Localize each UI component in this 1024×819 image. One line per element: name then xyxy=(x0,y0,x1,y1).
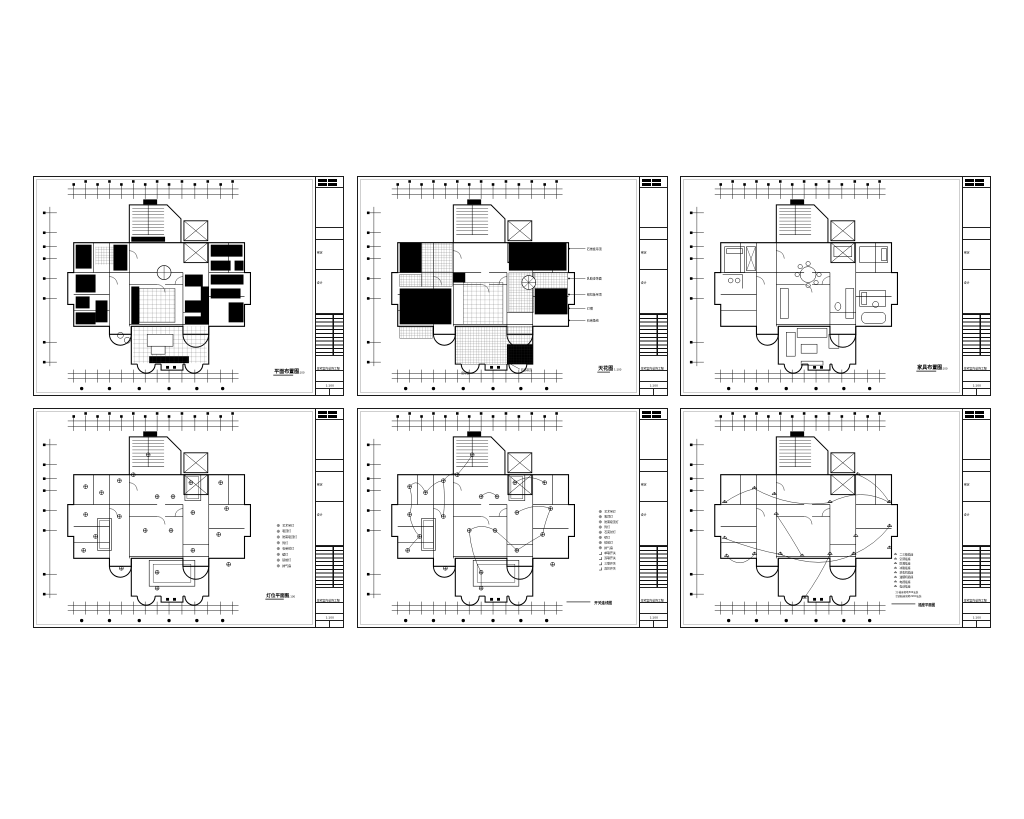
company-logo-icon xyxy=(316,177,343,188)
legend-notes: 注:插座离地300安装空调插座离地2200安装 xyxy=(895,590,922,598)
leader-label: 石膏角线 xyxy=(587,317,599,322)
title-block-cell xyxy=(316,420,343,460)
approval-label: 审定 xyxy=(640,482,646,486)
title-block-cell xyxy=(640,460,667,472)
project-name-cell: 住宅室内装饰工程 xyxy=(316,356,343,371)
project-name-cell: 住宅室内装饰工程 xyxy=(316,588,343,603)
drawing-area: 艺术吊灯吸顶灯防雾吸顶灯筒灯石英射灯壁灯镜前灯排气扇单联开关双联开关三联开关双控… xyxy=(358,409,639,627)
design-label: 设计 xyxy=(316,512,322,516)
company-logo-icon xyxy=(963,409,990,420)
project-name-cell: 住宅室内装饰工程 xyxy=(963,356,990,371)
drawing-area: 二三极插座空调插座防溅插座冰箱插座洗衣机插座油烟机插座电视插座电话插座注:插座离… xyxy=(681,409,962,627)
title-block-cell xyxy=(316,228,343,240)
scale-cell: 1:100 xyxy=(640,614,667,627)
title-block: 审定 设计 住宅室内装饰工程 灯位平面图 1:100 xyxy=(315,409,343,627)
revision-table xyxy=(316,314,343,356)
design-cell: 设计 xyxy=(316,270,343,314)
revision-table xyxy=(316,546,343,588)
drawing-name-cell: 灯位平面图 xyxy=(316,603,343,614)
approval-cell: 审定 xyxy=(963,240,990,270)
sheet-number-cell xyxy=(640,389,667,395)
legend-item-label: 单联开关 xyxy=(604,550,616,555)
legend-item-label: 石英射灯 xyxy=(282,546,294,551)
legend-item-label: 油烟机插座 xyxy=(899,575,913,579)
drawing-sheet-1: 平面布置图1:100 审定 设计 住宅室内装饰工程 平面布置图 1:100 xyxy=(33,176,344,396)
legend-item-label: 双联开关 xyxy=(604,555,616,560)
drawing-area: 石膏板吊顶乳胶漆饰面铝扣板吊顶灯槽石膏角线局部吊顶窗帘盒天花图1:100 xyxy=(358,177,639,395)
scale-value: 1:100 xyxy=(972,615,980,619)
floor-plan-svg: 艺术吊灯吸顶灯防雾吸顶灯筒灯石英射灯壁灯镜前灯排气扇灯位平面图1:100 xyxy=(34,409,315,627)
approval-cell: 审定 xyxy=(316,472,343,502)
title-block: 审定 设计 住宅室内装饰工程 天花图 1:100 xyxy=(639,177,667,395)
design-label: 设计 xyxy=(640,280,646,284)
company-logo-icon xyxy=(640,409,667,420)
ceiling-note: 窗帘盒 xyxy=(461,371,470,375)
design-cell: 设计 xyxy=(640,502,667,546)
ceiling-note: 局部吊顶 xyxy=(521,368,532,372)
project-name: 住宅室内装饰工程 xyxy=(316,598,342,602)
drawing-sheet-6: 二三极插座空调插座防溅插座冰箱插座洗衣机插座油烟机插座电视插座电话插座注:插座离… xyxy=(680,408,991,628)
scale-value: 1:100 xyxy=(649,383,657,387)
legend-item-label: 艺术吊灯 xyxy=(604,509,616,514)
title-block: 审定 设计 住宅室内装饰工程 平面布置图 1:100 xyxy=(315,177,343,395)
revision-table xyxy=(963,314,990,356)
sheet-grid: 平面布置图1:100 审定 设计 住宅室内装饰工程 平面布置图 1:100 石膏… xyxy=(0,0,1024,819)
company-logo-icon xyxy=(316,409,343,420)
approval-label: 审定 xyxy=(963,250,969,254)
note-line: 注:插座离地300安装 xyxy=(895,590,918,594)
scale-cell: 1:100 xyxy=(316,614,343,627)
sheet-number-cell xyxy=(963,389,990,395)
sheet-number-cell xyxy=(316,389,343,395)
sheet-scale: 1:100 xyxy=(614,368,622,372)
scale-value: 1:100 xyxy=(972,383,980,387)
legend-item-label: 壁灯 xyxy=(604,534,610,539)
legend-item-label: 防雾吸顶灯 xyxy=(282,534,297,539)
project-name-cell: 住宅室内装饰工程 xyxy=(640,356,667,371)
title-block-cell xyxy=(640,420,667,460)
scale-cell: 1:100 xyxy=(963,382,990,395)
title-block: 审定 设计 住宅室内装饰工程 家具布置图 1:100 xyxy=(962,177,990,395)
legend-item-label: 电视插座 xyxy=(899,580,910,584)
drawing-name-cell: 天花图 xyxy=(640,371,667,382)
scale-cell: 1:100 xyxy=(963,614,990,627)
sheet-title: 平面布置图 xyxy=(274,368,299,375)
approval-cell: 审定 xyxy=(640,472,667,502)
scale-cell: 1:100 xyxy=(640,382,667,395)
floor-plan-svg: 石膏板吊顶乳胶漆饰面铝扣板吊顶灯槽石膏角线局部吊顶窗帘盒天花图1:100 xyxy=(358,177,639,395)
floor-plan-svg: 二三极插座空调插座防溅插座冰箱插座洗衣机插座油烟机插座电视插座电话插座注:插座离… xyxy=(681,409,962,627)
title-block-cell xyxy=(316,188,343,228)
legend-item-label: 防雾吸顶灯 xyxy=(604,519,618,524)
scale-bar xyxy=(567,601,591,602)
legend-item-label: 冰箱插座 xyxy=(899,566,910,570)
approval-label: 审定 xyxy=(640,250,646,254)
legend-item-label: 二三极插座 xyxy=(899,552,913,556)
legend-item-label: 吸顶灯 xyxy=(604,514,613,519)
legend: 艺术吊灯吸顶灯防雾吸顶灯筒灯石英射灯壁灯镜前灯排气扇 xyxy=(277,522,297,567)
project-name: 住宅室内装饰工程 xyxy=(640,366,666,370)
drawing-sheet-4: 艺术吊灯吸顶灯防雾吸顶灯筒灯石英射灯壁灯镜前灯排气扇灯位平面图1:100 审定 … xyxy=(33,408,344,628)
company-logo-icon xyxy=(640,177,667,188)
sheet-title: 灯位平面图 xyxy=(266,592,289,599)
drawing-sheet-5: 艺术吊灯吸顶灯防雾吸顶灯筒灯石英射灯壁灯镜前灯排气扇单联开关双联开关三联开关双控… xyxy=(357,408,668,628)
legend-item-label: 排气扇 xyxy=(604,545,613,550)
approval-cell: 审定 xyxy=(963,472,990,502)
design-label: 设计 xyxy=(963,280,969,284)
scale-cell: 1:100 xyxy=(316,382,343,395)
drawing-name-cell: 插座平面图 xyxy=(963,603,990,614)
design-label: 设计 xyxy=(316,280,322,284)
sheet-title: 家具布置图 xyxy=(917,364,942,371)
approval-label: 审定 xyxy=(963,482,969,486)
project-name-cell: 住宅室内装饰工程 xyxy=(640,588,667,603)
legend-item-label: 电话插座 xyxy=(899,584,910,588)
sheet-scale: 1:100 xyxy=(297,371,305,375)
drawing-name-cell: 开关连线图 xyxy=(640,603,667,614)
revision-table xyxy=(963,546,990,588)
note-line: 空调插座离地2200安装 xyxy=(895,594,922,598)
legend: 二三极插座空调插座防溅插座冰箱插座洗衣机插座油烟机插座电视插座电话插座 xyxy=(894,552,914,588)
legend-item-label: 艺术吊灯 xyxy=(282,522,294,527)
legend-item-label: 石英射灯 xyxy=(604,529,616,534)
leader-label: 灯槽 xyxy=(587,305,593,310)
floor-plan-svg: 家具布置图1:100 xyxy=(681,177,962,395)
project-name: 住宅室内装饰工程 xyxy=(640,598,666,602)
title-block-cell xyxy=(963,460,990,472)
page-root: { "page": { "background": "#ffffff", "in… xyxy=(0,0,1024,819)
title-block: 审定 设计 住宅室内装饰工程 插座平面图 1:100 xyxy=(962,409,990,627)
title-block-cell xyxy=(316,460,343,472)
project-name: 住宅室内装饰工程 xyxy=(963,598,989,602)
drawing-area: 平面布置图1:100 xyxy=(34,177,315,395)
legend-item-label: 排气扇 xyxy=(282,563,291,568)
sheet-scale: 1:100 xyxy=(940,367,948,371)
scale-value: 1:100 xyxy=(325,615,333,619)
design-cell: 设计 xyxy=(316,502,343,546)
scale-bar xyxy=(892,603,916,604)
title-block-cell xyxy=(640,228,667,240)
design-label: 设计 xyxy=(963,512,969,516)
title-block-cell xyxy=(640,188,667,228)
title-block-cell xyxy=(963,188,990,228)
legend-item-label: 吸顶灯 xyxy=(282,528,291,533)
project-name-cell: 住宅室内装饰工程 xyxy=(963,588,990,603)
legend: 艺术吊灯吸顶灯防雾吸顶灯筒灯石英射灯壁灯镜前灯排气扇单联开关双联开关三联开关双控… xyxy=(599,509,619,571)
drawing-name-cell: 家具布置图 xyxy=(963,371,990,382)
legend-item-label: 双控开关 xyxy=(604,565,616,570)
sheet-number-cell xyxy=(963,621,990,627)
sheet-title: 开关连线图 xyxy=(594,600,612,605)
drawing-name-cell: 平面布置图 xyxy=(316,371,343,382)
legend-item-label: 防溅插座 xyxy=(899,561,910,565)
design-cell: 设计 xyxy=(640,270,667,314)
leader-label: 乳胶漆饰面 xyxy=(587,276,602,281)
sheet-title: 天花图 xyxy=(598,365,613,372)
title-block-cell xyxy=(963,228,990,240)
approval-label: 审定 xyxy=(316,250,322,254)
legend-item-label: 筒灯 xyxy=(604,524,610,529)
leader-label: 石膏板吊顶 xyxy=(587,246,602,251)
design-label: 设计 xyxy=(640,512,646,516)
sheet-number-cell xyxy=(640,621,667,627)
approval-cell: 审定 xyxy=(316,240,343,270)
legend-item-label: 空调插座 xyxy=(899,557,910,561)
title-block-cell xyxy=(963,420,990,460)
drawing-area: 艺术吊灯吸顶灯防雾吸顶灯筒灯石英射灯壁灯镜前灯排气扇灯位平面图1:100 xyxy=(34,409,315,627)
sheet-title: 插座平面图 xyxy=(918,602,935,607)
drawing-area: 家具布置图1:100 xyxy=(681,177,962,395)
floor-plan-svg: 艺术吊灯吸顶灯防雾吸顶灯筒灯石英射灯壁灯镜前灯排气扇单联开关双联开关三联开关双控… xyxy=(358,409,639,627)
drawing-sheet-2: 石膏板吊顶乳胶漆饰面铝扣板吊顶灯槽石膏角线局部吊顶窗帘盒天花图1:100 审定 … xyxy=(357,176,668,396)
project-name: 住宅室内装饰工程 xyxy=(963,366,989,370)
design-cell: 设计 xyxy=(963,270,990,314)
leader-label: 铝扣板吊顶 xyxy=(587,292,602,297)
legend-item-label: 筒灯 xyxy=(282,540,288,545)
legend-item-label: 三联开关 xyxy=(604,560,616,565)
scale-value: 1:100 xyxy=(649,615,657,619)
title-block: 审定 设计 住宅室内装饰工程 开关连线图 1:100 xyxy=(639,409,667,627)
scale-value: 1:100 xyxy=(325,383,333,387)
drawing-sheet-3: 家具布置图1:100 审定 设计 住宅室内装饰工程 家具布置图 1:100 xyxy=(680,176,991,396)
sheet-scale: 1:100 xyxy=(288,595,296,599)
revision-table xyxy=(640,546,667,588)
sheet-number-cell xyxy=(316,621,343,627)
project-name: 住宅室内装饰工程 xyxy=(316,366,342,370)
approval-cell: 审定 xyxy=(640,240,667,270)
legend-item-label: 壁灯 xyxy=(282,551,288,556)
legend-item-label: 镜前灯 xyxy=(604,540,613,545)
legend-item-label: 镜前灯 xyxy=(282,557,291,562)
design-cell: 设计 xyxy=(963,502,990,546)
approval-label: 审定 xyxy=(316,482,322,486)
floor-plan-svg: 平面布置图1:100 xyxy=(34,177,315,395)
revision-table xyxy=(640,314,667,356)
legend-item-label: 洗衣机插座 xyxy=(899,571,913,575)
company-logo-icon xyxy=(963,177,990,188)
